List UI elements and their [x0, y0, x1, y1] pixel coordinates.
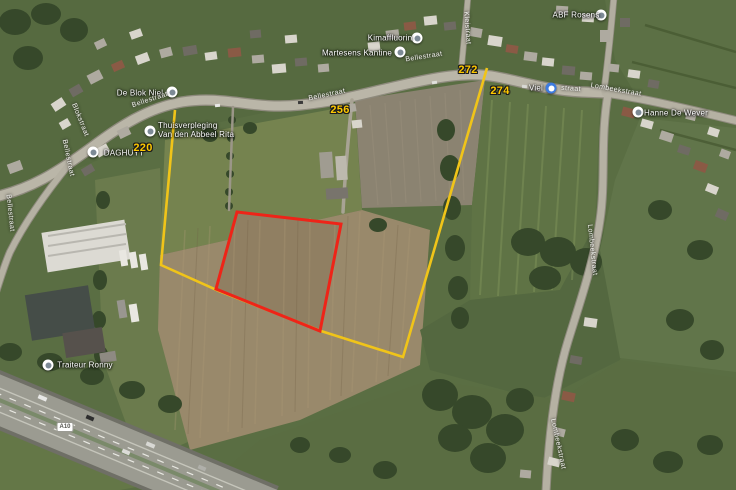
road-label-8: Blokstraat — [70, 102, 90, 137]
poi-label-line: Thuisverpleging — [158, 121, 234, 130]
poi-glyph — [90, 149, 96, 155]
poi-label-hanne-de-wever[interactable]: Hanne De Wever — [644, 109, 708, 118]
poi-label-kimaffluorin[interactable]: Kimaffluorin — [368, 34, 413, 43]
daghuyt-poi-icon[interactable] — [88, 147, 99, 158]
kimaffluorin-poi-icon[interactable] — [412, 33, 423, 44]
poi-label-abf-rosens[interactable]: ABF Rosens — [553, 11, 600, 20]
road-label-3: straat — [561, 85, 581, 93]
house-number-274: 274 — [490, 85, 509, 97]
road-label-7: Kleistraat — [462, 11, 471, 45]
map-viewport[interactable]: De Blok NielThuisverplegingVan den Abbee… — [0, 0, 736, 490]
road-label-1: Bellestraat — [308, 88, 346, 103]
road-label-4: Lombeekstraat — [590, 82, 642, 98]
house-number-256: 256 — [330, 104, 349, 116]
poi-label-thuisverpleging-van-den-abbeel-rita[interactable]: ThuisverplegingVan den Abbeel Rita — [158, 121, 234, 139]
poi-label-martesens-kantine[interactable]: Martesens Kantine — [322, 49, 392, 58]
house-number-272: 272 — [458, 64, 477, 76]
viel-poi-icon[interactable] — [546, 83, 557, 94]
poi-label-traiteur-ronny[interactable]: Traiteur Ronny — [57, 361, 112, 370]
hanne-de-wever-poi-icon[interactable] — [633, 107, 644, 118]
poi-glyph — [169, 89, 175, 95]
poi-glyph — [548, 85, 554, 91]
thuisverpleging-van-den-abbeel-rita-poi-icon[interactable] — [145, 126, 156, 137]
road-label-5: Lombeekstraat — [586, 224, 598, 276]
road-label-9: Bellestraat — [61, 139, 76, 177]
house-number-220: 220 — [133, 142, 152, 154]
road-label-6: Lombeekstraat — [549, 418, 567, 470]
poi-glyph — [414, 35, 420, 41]
traiteur-ronny-poi-icon[interactable] — [43, 360, 54, 371]
poi-glyph — [147, 128, 153, 134]
map-labels-layer: De Blok NielThuisverplegingVan den Abbee… — [0, 0, 736, 490]
route-shield-A10: A10 — [56, 422, 73, 432]
poi-label-line: Van den Abbeel Rita — [158, 130, 234, 139]
road-label-2: Bellestraat — [405, 51, 443, 64]
road-label-10: Bellestraat — [5, 194, 16, 232]
poi-label-viel[interactable]: Viel — [529, 84, 543, 93]
poi-glyph — [397, 49, 403, 55]
poi-glyph — [635, 109, 641, 115]
poi-glyph — [45, 362, 51, 368]
